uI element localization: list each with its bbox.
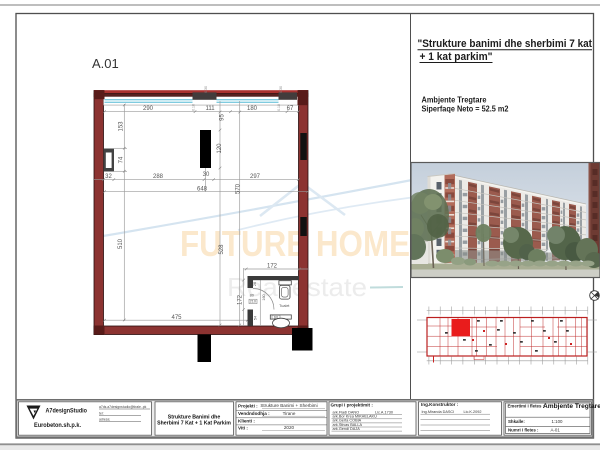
svg-text:tel:: tel: — [99, 411, 104, 415]
svg-text:67: 67 — [287, 106, 294, 112]
svg-text:74: 74 — [119, 156, 125, 163]
svg-text:Strukture Banimi dhe: Strukture Banimi dhe — [168, 414, 221, 420]
svg-text:54: 54 — [253, 316, 257, 320]
svg-text:290: 290 — [143, 106, 154, 112]
svg-text:"Strukture banimi dhe sherbimi: "Strukture banimi dhe sherbimi 7 kat — [418, 38, 593, 50]
svg-text:Ing.Konstruktor :: Ing.Konstruktor : — [421, 402, 459, 407]
svg-text:172: 172 — [267, 263, 278, 269]
svg-text:Tualet: Tualet — [279, 304, 290, 308]
svg-text:Tirane: Tirane — [283, 411, 296, 416]
svg-text:120: 120 — [217, 143, 223, 154]
svg-text:111: 111 — [205, 106, 215, 112]
svg-text:648: 648 — [197, 187, 208, 193]
svg-text:32: 32 — [105, 174, 112, 180]
svg-text:60: 60 — [274, 315, 278, 319]
svg-text:Vendndodhja :: Vendndodhja : — [238, 411, 270, 416]
svg-text:210: 210 — [250, 300, 256, 304]
svg-text:153: 153 — [119, 121, 125, 132]
svg-text:0.30: 0.30 — [204, 86, 208, 93]
svg-text:80: 80 — [250, 294, 254, 298]
svg-text:Siperfaqe Neto = 52.5 m2: Siperfaqe Neto = 52.5 m2 — [422, 104, 509, 114]
svg-text:Klienti :: Klienti : — [238, 418, 255, 423]
svg-text:Lic.K.2092: Lic.K.2092 — [464, 410, 482, 414]
svg-text:528: 528 — [219, 244, 225, 255]
svg-text:A.01: A.01 — [92, 56, 119, 71]
svg-text:Lic.A.1730: Lic.A.1730 — [375, 411, 393, 415]
svg-text:Emertimi i fletes :: Emertimi i fletes : — [508, 403, 545, 408]
svg-text:ark.Gendi DAJA: ark.Gendi DAJA — [333, 427, 361, 431]
svg-text:+ 1 kat parkim": + 1 kat parkim" — [420, 51, 493, 63]
svg-text:Shkalle:: Shkalle: — [508, 419, 525, 424]
svg-text:Ing.Miranda DASCI: Ing.Miranda DASCI — [422, 410, 455, 414]
svg-text:570: 570 — [236, 183, 242, 194]
svg-text:510: 510 — [118, 238, 124, 249]
svg-text:288: 288 — [153, 174, 164, 180]
svg-text:30: 30 — [203, 172, 210, 178]
svg-text:95: 95 — [220, 114, 226, 121]
svg-text:297: 297 — [250, 174, 261, 180]
svg-text:adresa:: adresa: — [99, 417, 110, 421]
svg-text:A-01: A-01 — [551, 427, 561, 432]
svg-text:Eurobeton.sh.p.k.: Eurobeton.sh.p.k. — [34, 422, 81, 429]
svg-text:Strukture Banimi + Sherbimi: Strukture Banimi + Sherbimi — [260, 403, 317, 408]
svg-text:Sherbimi 7 Kat + 1 Kat Parkim: Sherbimi 7 Kat + 1 Kat Parkim — [157, 420, 231, 426]
svg-text:2020: 2020 — [284, 425, 295, 430]
svg-text:Projekti :: Projekti : — [238, 404, 258, 409]
svg-text:0.18: 0.18 — [192, 104, 196, 111]
svg-text:475: 475 — [171, 315, 182, 321]
svg-text:26: 26 — [253, 282, 257, 286]
svg-text:A7designStudio: A7designStudio — [46, 408, 88, 415]
svg-text:0.30: 0.30 — [279, 86, 283, 93]
svg-text:0.18: 0.18 — [277, 104, 281, 111]
svg-text:Viti :: Viti : — [238, 426, 248, 431]
svg-text:a7ds.a7designstudio@tirale..pk: a7ds.a7designstudio@tirale..pk — [99, 405, 147, 409]
svg-text:180: 180 — [247, 106, 258, 112]
svg-text:Numri i fletes :: Numri i fletes : — [508, 427, 539, 432]
svg-text:Grupi i projektimit :: Grupi i projektimit : — [331, 403, 374, 408]
svg-text:172: 172 — [238, 294, 244, 305]
svg-text:160: 160 — [262, 294, 266, 300]
svg-text:Ambjente Tregtare: Ambjente Tregtare — [543, 403, 600, 410]
svg-text:1:100: 1:100 — [552, 419, 564, 424]
svg-text:FUTURE HOME: FUTURE HOME — [180, 223, 410, 264]
